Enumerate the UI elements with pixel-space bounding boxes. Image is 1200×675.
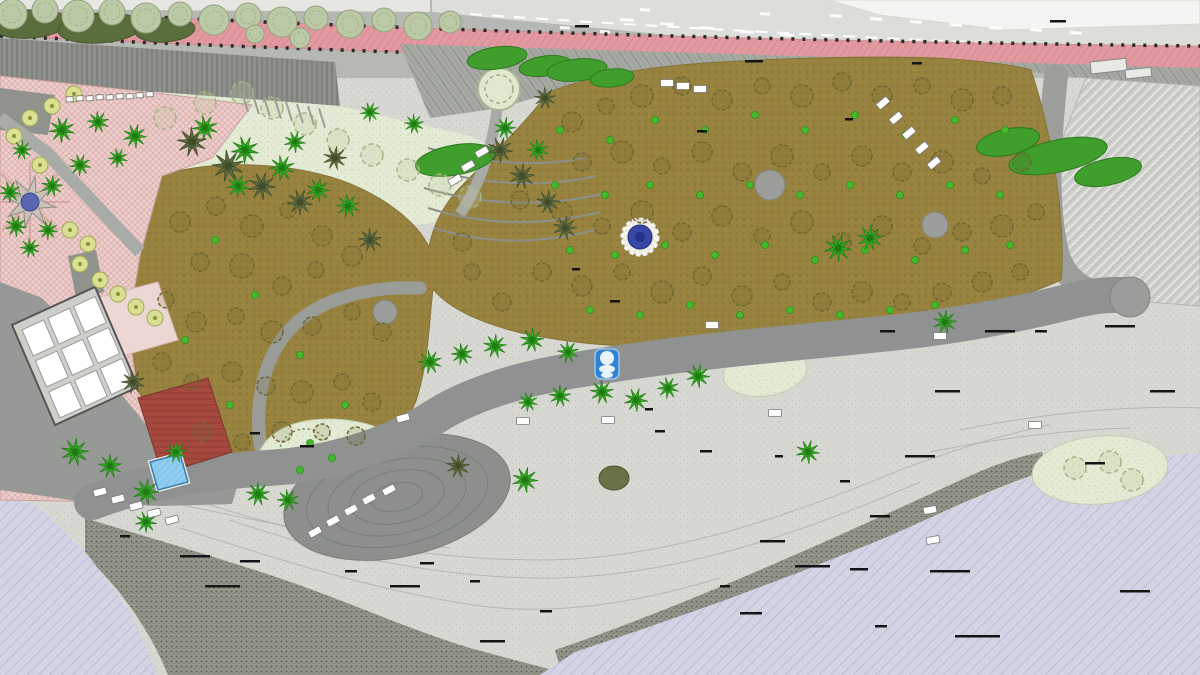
dune-shrub-icon [158,292,174,308]
yellow-shrub-icon [44,98,60,114]
annotation-mark [540,610,552,613]
annotation-mark [1150,390,1175,393]
yellow-shrub-icon [6,128,22,144]
small-shrub-icon [762,242,769,249]
small-shrub-icon [182,337,189,344]
annotation-mark [840,480,850,483]
dune-shrub-icon [464,264,480,280]
dune-shrub-icon [344,304,360,320]
dune-shrub-icon [614,264,630,280]
dune-shrub-icon [363,393,381,411]
dune-shrub-icon [993,87,1011,105]
yellow-shrub-icon [92,272,108,288]
dune-shrub-icon [754,228,770,244]
dune-shrub-icon [1028,204,1044,220]
dune-shrub-icon [791,211,813,233]
bench [116,94,123,99]
small-shrub-icon [552,182,559,189]
small-shrub-icon [612,252,619,259]
annotation-mark [572,268,580,271]
dune-shrub-icon [972,272,992,292]
annotation-mark [120,535,130,538]
path-circle [755,170,785,200]
dune-shrub-icon [184,374,200,390]
round-lawn [478,68,520,110]
small-shrub-icon [227,402,234,409]
beach-amenity-icon [595,349,619,379]
dune-shrub-icon [303,317,321,335]
small-shrub-icon [962,247,969,254]
plan-label-tag [677,83,690,90]
plan-label-tag [694,86,707,93]
street-tree-icon [0,0,27,29]
annotation-mark [250,432,260,435]
small-shrub-icon [662,242,669,249]
small-shrub-icon [252,292,259,299]
lawn-tree-icon [1121,469,1143,491]
plan-label-tag [661,80,674,87]
yellow-shrub-icon [147,310,163,326]
annotation-mark [205,585,240,588]
dune-shrub-icon [552,202,572,222]
dune-shrub-icon [170,212,190,232]
bench [106,95,113,100]
small-shrub-icon [997,192,1004,199]
dune-shrub-icon [654,158,670,174]
dune-shrub-icon [193,423,211,441]
small-shrub-icon [932,302,939,309]
small-shrub-icon [797,192,804,199]
annotation-mark [875,625,887,628]
lawn-tree-icon [397,159,419,181]
dune-shrub-icon [1013,153,1031,171]
street-tree-icon [32,0,58,23]
dune-shrub-icon [312,226,332,246]
small-shrub-icon [212,237,219,244]
small-shrub-icon [837,312,844,319]
street-tree-icon [246,25,264,43]
street-tree-icon [290,28,310,48]
street-tree-icon [131,3,161,33]
small-shrub-icon [887,307,894,314]
plan-label-tag [934,333,947,340]
annotation-mark [845,118,853,121]
dune-shrub-icon [291,381,313,403]
annotation-mark [720,585,730,588]
plan-label-tag [769,410,782,417]
dune-shrub-icon [347,427,365,445]
street-tree-icon [62,0,94,32]
street-tree-icon [439,11,461,33]
small-shrub-icon [747,182,754,189]
street-tree-icon [168,2,192,26]
small-shrub-icon [752,112,759,119]
lawn-tree-icon [154,107,176,129]
lawn-tree-icon [459,186,481,208]
dune-shrub-icon [692,142,712,162]
plan-label-tag [1029,422,1042,429]
small-shrub-icon [812,257,819,264]
dune-shrub-icon [712,90,732,110]
street-tree-icon [404,12,432,40]
annotation-mark [345,570,357,573]
dune-shrub-icon [852,282,872,302]
dune-shrub-icon [241,215,263,237]
dune-shrub-icon [732,286,752,306]
street-tree-icon [99,0,125,25]
bench [86,96,93,101]
annotation-mark [930,570,970,573]
annotation-mark [795,565,830,568]
yellow-shrub-icon [62,222,78,238]
annotation-mark [745,60,763,63]
small-shrub-icon [342,402,349,409]
annotation-mark [420,562,434,565]
small-shrub-icon [952,117,959,124]
annotation-mark [870,515,890,518]
small-shrub-icon [652,117,659,124]
street-tree-icon [372,8,396,32]
small-shrub-icon [587,307,594,314]
dune-shrub-icon [207,197,225,215]
dune-shrub-icon [914,78,930,94]
small-shrub-icon [947,182,954,189]
small-shrub-icon [602,192,609,199]
dune-shrub-icon [230,254,254,278]
small-shrub-icon [802,127,809,134]
dune-shrub-icon [533,263,551,281]
dune-shrub-icon [191,253,209,271]
dune-shrub-icon [974,168,990,184]
path-circle [1110,277,1150,317]
dune-shrub-icon [257,377,275,395]
lawn-tree-icon [194,92,216,114]
dune-shrub-icon [611,141,633,163]
path-circle [373,300,397,324]
plan-label-tag [602,417,615,424]
dune-shrub-icon [791,85,813,107]
street-tree-icon [199,5,229,35]
dune-shrub-icon [594,218,610,234]
bench [66,97,73,102]
small-shrub-icon [897,192,904,199]
dune-shrub-icon [493,293,511,311]
small-shrub-icon [787,307,794,314]
yellow-shrub-icon [72,256,88,272]
site-plan-stage [0,0,1200,675]
dune-shrub-icon [153,353,171,371]
annotation-mark [240,560,260,563]
street-tree-icon [304,6,328,30]
dune-shrub-icon [852,146,872,166]
small-shrub-icon [329,455,336,462]
fountain-icon [622,219,658,255]
small-shrub-icon [852,112,859,119]
small-shrub-icon [557,127,564,134]
dune-shrub-icon [373,323,391,341]
dune-shrub-icon [991,215,1013,237]
annotation-mark [935,390,960,393]
small-shrub-icon [297,352,304,359]
annotation-mark [1050,20,1066,23]
annotation-mark [390,585,420,588]
annotation-mark [740,612,762,615]
dune-shrub-icon [893,163,911,181]
lawn-tree-icon [1064,457,1086,479]
small-shrub-icon [687,302,694,309]
dune-shrub-icon [228,308,244,324]
dune-shrub-icon [953,223,971,241]
dune-shrub-icon [933,283,951,301]
dune-shrub-icon [733,163,751,181]
small-shrub-icon [297,467,304,474]
annotation-mark [655,430,665,433]
small-shrub-icon [637,312,644,319]
small-shrub-icon [607,137,614,144]
small-shrub-icon [697,192,704,199]
dune-shrub-icon [693,267,711,285]
small-shrub-icon [712,252,719,259]
plan-label-tag [706,322,719,329]
dune-shrub-icon [342,246,362,266]
dune-shrub-icon [511,191,529,209]
yellow-shrub-icon [128,299,144,315]
lawn-tree-icon [327,129,349,151]
site-plan-svg [0,0,1200,675]
small-shrub-icon [567,247,574,254]
annotation-mark [575,25,589,28]
annotation-mark [610,300,620,303]
dune-shrub-icon [712,206,732,226]
annotation-mark [697,130,707,133]
dune-shrub-icon [308,262,324,278]
annotation-mark [480,640,505,643]
dune-shrub-icon [222,362,242,382]
dune-shrub-icon [894,294,910,310]
small-shrub-icon [912,257,919,264]
annotation-mark [912,62,922,65]
dune-shrub-icon [631,201,653,223]
dune-shrub-icon [572,276,592,296]
dune-shrub-icon [1012,264,1028,280]
lawn-tree-icon [361,144,383,166]
dune-shrub-icon [186,312,206,332]
annotation-mark [1120,590,1150,593]
small-shrub-icon [737,312,744,319]
bench [136,93,143,98]
plan-label-tag [517,418,530,425]
beach-tree-blob-icon [599,466,629,490]
small-shrub-icon [847,182,854,189]
dune-shrub-icon [814,164,830,180]
yellow-shrub-icon [32,157,48,173]
street-tree-icon [336,10,364,38]
dune-shrub-icon [673,223,691,241]
annotation-mark [1035,330,1047,333]
annotation-mark [775,455,783,458]
dune-shrub-icon [562,112,582,132]
annotation-mark [760,540,785,543]
small-shrub-icon [1007,242,1014,249]
dune-shrub-icon [833,73,851,91]
dune-shrub-icon [813,293,831,311]
annotation-mark [180,555,210,558]
annotation-mark [1085,462,1105,465]
annotation-mark [905,455,935,458]
dune-shrub-icon [334,374,350,390]
dune-shrub-icon [314,424,330,440]
dune-shrub-icon [453,233,471,251]
annotation-mark [645,408,653,411]
dune-shrub-icon [951,89,973,111]
bench [126,94,133,99]
annotation-mark [850,568,868,571]
dune-shrub-icon [234,434,250,450]
annotation-mark [300,445,314,448]
annotation-mark [470,580,480,583]
bench [76,96,83,101]
dune-shrub-icon [771,145,793,167]
bench [96,95,103,100]
dune-shrub-icon [261,321,283,343]
dune-shrub-icon [651,281,673,303]
path-circle [922,212,948,238]
annotation-mark [955,635,1000,638]
annotation-mark [700,450,712,453]
bench [146,92,153,97]
small-shrub-icon [647,182,654,189]
dune-shrub-icon [272,422,292,442]
small-shrub-icon [1002,127,1009,134]
dune-shrub-icon [914,238,930,254]
annotation-mark [985,330,1015,333]
dune-shrub-icon [774,274,790,290]
annotation-mark [1105,325,1135,328]
dune-shrub-icon [598,98,614,114]
dune-shrub-icon [754,78,770,94]
lawn-tree-icon [429,174,451,196]
yellow-shrub-icon [80,236,96,252]
yellow-shrub-icon [22,110,38,126]
dune-shrub-icon [631,85,653,107]
dune-shrub-icon [273,277,291,295]
yellow-shrub-icon [110,286,126,302]
annotation-mark [880,330,895,333]
dune-shrub-icon [573,153,591,171]
